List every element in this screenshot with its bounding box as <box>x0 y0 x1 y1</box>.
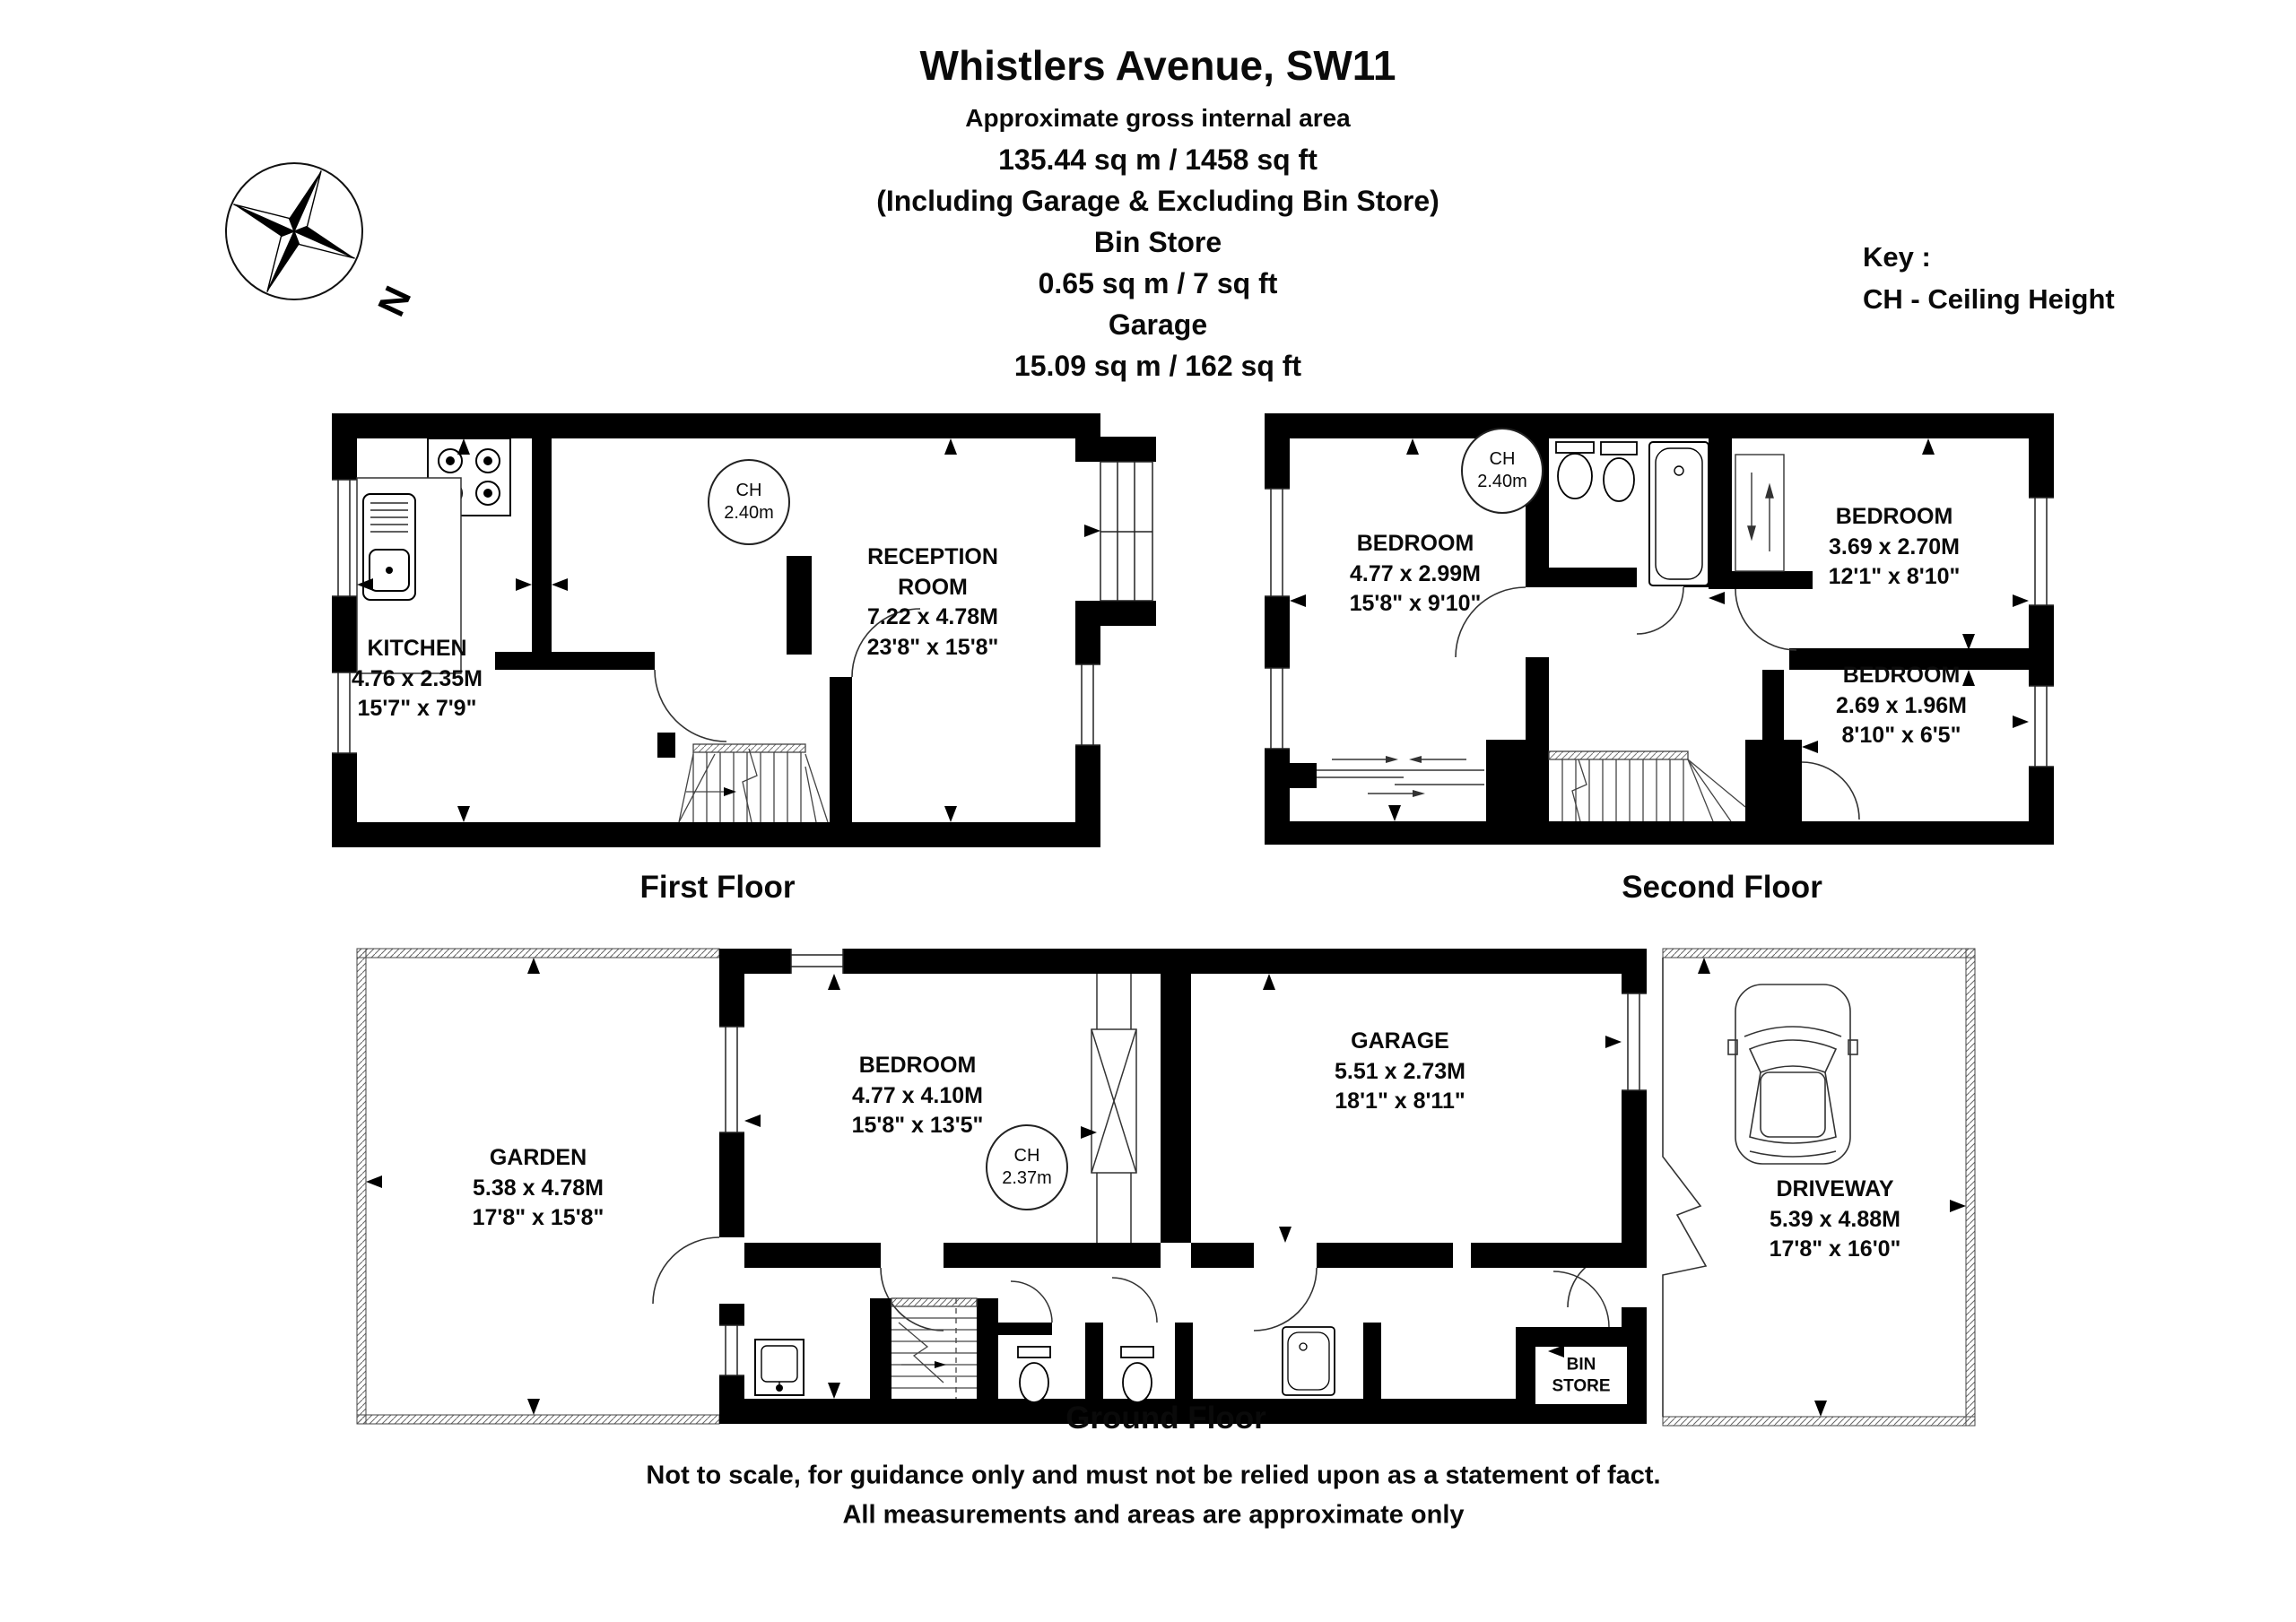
window-icon <box>332 480 357 596</box>
ground-floor-title: Ground Floor <box>1065 1401 1266 1436</box>
window-icon <box>719 1027 744 1132</box>
bath-icon <box>1283 1327 1335 1395</box>
window-icon <box>2029 686 2054 767</box>
reception-room-label: RECEPTION ROOM 7.22 x 4.78M 23'8" x 15'8… <box>867 542 999 663</box>
garage-name: Garage <box>876 308 1439 342</box>
compass-north-label: N <box>370 280 419 322</box>
window-icon <box>1075 664 1100 745</box>
second-floor-drawing <box>1260 408 2067 856</box>
key-ch-entry: CH - Ceiling Height <box>1863 279 2115 321</box>
page-title: Whistlers Avenue, SW11 <box>876 41 1439 90</box>
bin-store-area: 0.65 sq m / 7 sq ft <box>876 267 1439 300</box>
disclaimer-line1: Not to scale, for guidance only and must… <box>646 1462 1660 1491</box>
kitchen-label: KITCHEN 4.76 x 2.35M 15'7" x 7'9" <box>352 634 483 724</box>
window-icon <box>1265 489 1290 596</box>
garage-door-icon <box>1622 993 1647 1090</box>
garage-label: GARAGE 5.51 x 2.73M 18'1" x 8'11" <box>1335 1027 1465 1117</box>
window-icon <box>1265 668 1290 749</box>
toilet-icon <box>1018 1347 1050 1402</box>
second-floor-title: Second Floor <box>1622 870 1822 906</box>
bedroom3-label: BEDROOM 2.69 x 1.96M 8'10" x 6'5" <box>1836 661 1967 751</box>
header-block: Whistlers Avenue, SW11 Approximate gross… <box>876 41 1439 391</box>
total-area: 135.44 sq m / 1458 sq ft <box>876 143 1439 177</box>
toilet-icon <box>1601 442 1637 501</box>
header-subtitle: Approximate gross internal area <box>876 104 1439 133</box>
bedroom1-label: BEDROOM 4.77 x 2.99M 15'8" x 9'10" <box>1350 529 1482 620</box>
first-floor-title: First Floor <box>639 870 795 906</box>
bath-icon <box>1649 442 1709 585</box>
bedroom2-label: BEDROOM 3.69 x 2.70M 12'1" x 8'10" <box>1829 502 1961 593</box>
window-icon <box>791 949 843 974</box>
bin-store-name: Bin Store <box>876 226 1439 259</box>
bin-store-label: BIN STORE <box>1552 1354 1610 1397</box>
key-block: Key : CH - Ceiling Height <box>1863 237 2115 320</box>
driveway-label: DRIVEWAY 5.39 x 4.88M 17'8" x 16'0" <box>1770 1175 1901 1265</box>
floorplan-page: Whistlers Avenue, SW11 Approximate gross… <box>0 0 2296 1622</box>
compass-icon: N <box>222 160 429 330</box>
ground-bedroom-label: BEDROOM 4.77 x 4.10M 15'8" x 13'5" <box>852 1051 984 1141</box>
window-icon <box>2029 498 2054 605</box>
second-floor-plan <box>1260 408 2067 856</box>
kitchen-partition-wall <box>532 438 552 652</box>
sink-icon <box>755 1340 804 1395</box>
toilet-icon <box>1121 1347 1153 1402</box>
garage-area: 15.09 sq m / 162 sq ft <box>876 350 1439 383</box>
window-icon <box>719 1325 744 1375</box>
chimney-breast <box>787 556 812 655</box>
second-floor-ceiling-height: CH 2.40m <box>1461 428 1544 514</box>
basin-icon <box>1556 442 1594 499</box>
compass: N <box>222 160 429 330</box>
total-area-note: (Including Garage & Excluding Bin Store) <box>876 185 1439 218</box>
garden-label: GARDEN 5.38 x 4.78M 17'8" x 15'8" <box>473 1143 604 1234</box>
ground-floor-ceiling-height: CH 2.37m <box>986 1124 1068 1210</box>
disclaimer-line2: All measurements and areas are approxima… <box>842 1501 1464 1531</box>
first-floor-ceiling-height: CH 2.40m <box>708 459 790 545</box>
key-title: Key : <box>1863 237 2115 279</box>
